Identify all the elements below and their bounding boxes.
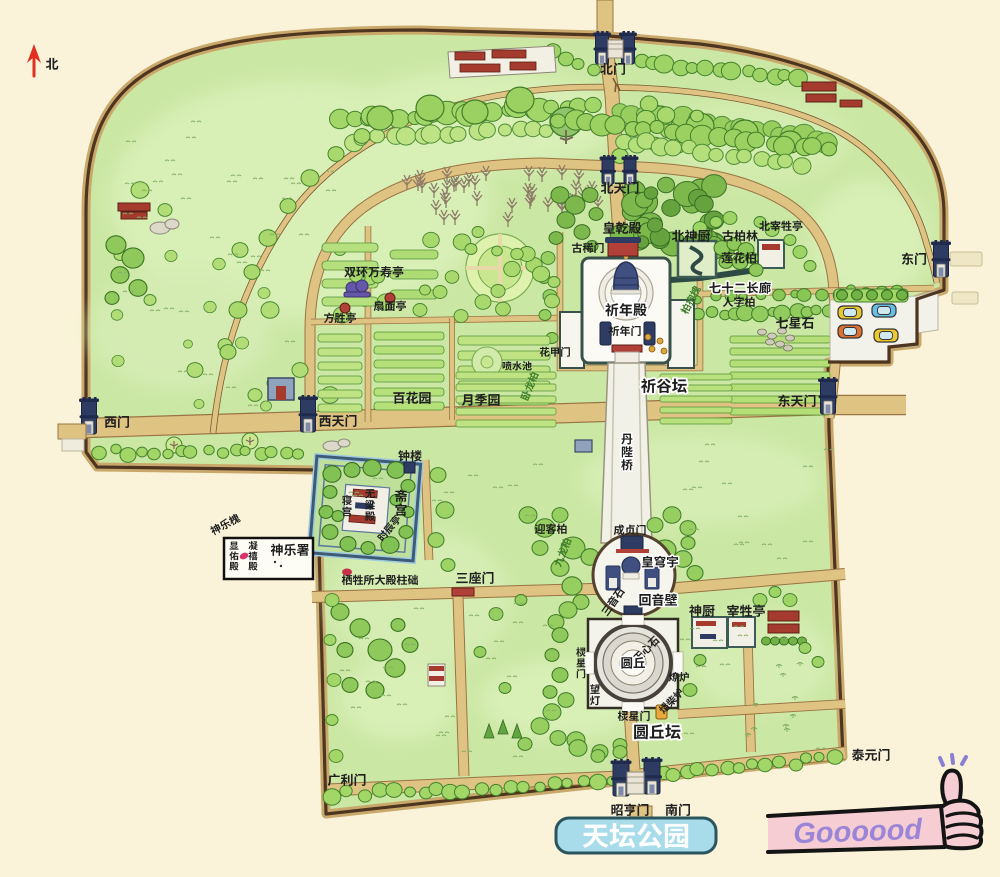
svg-text:Goooood: Goooood — [793, 814, 924, 851]
